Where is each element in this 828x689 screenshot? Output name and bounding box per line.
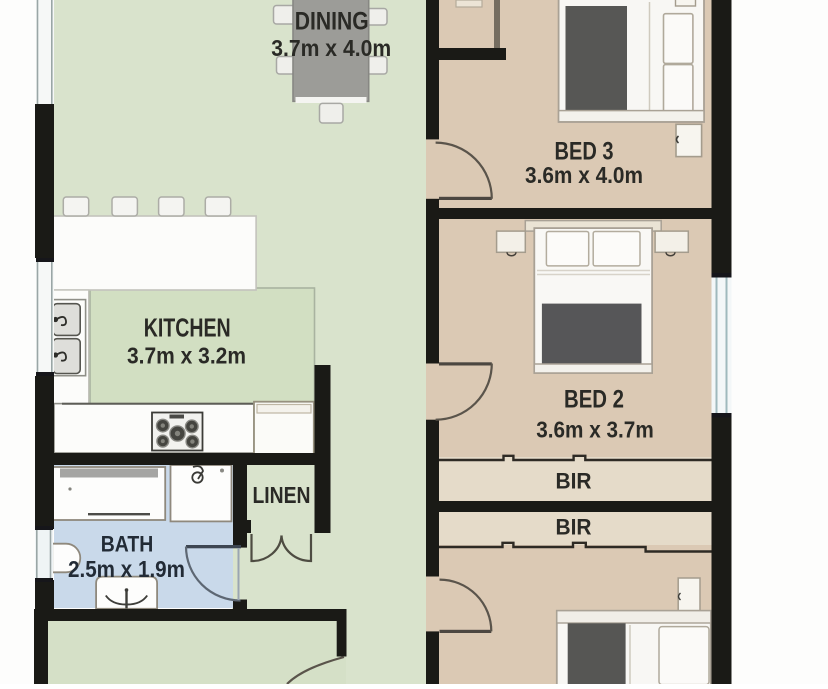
svg-text:BIR: BIR [556, 469, 592, 494]
svg-text:BIR: BIR [556, 515, 592, 540]
svg-text:2.5m x 1.9m: 2.5m x 1.9m [68, 556, 185, 582]
svg-text:BATH: BATH [101, 531, 154, 556]
svg-text:3.7m x 3.2m: 3.7m x 3.2m [127, 343, 246, 369]
svg-text:LINEN: LINEN [253, 482, 311, 508]
svg-text:KITCHEN: KITCHEN [144, 315, 231, 343]
svg-text:3.6m x 4.0m: 3.6m x 4.0m [525, 162, 643, 188]
svg-text:DINING: DINING [295, 8, 369, 36]
svg-text:BED 2: BED 2 [564, 386, 624, 414]
svg-text:3.7m x 4.0m: 3.7m x 4.0m [271, 35, 391, 61]
svg-text:3.6m x 3.7m: 3.6m x 3.7m [536, 416, 654, 442]
